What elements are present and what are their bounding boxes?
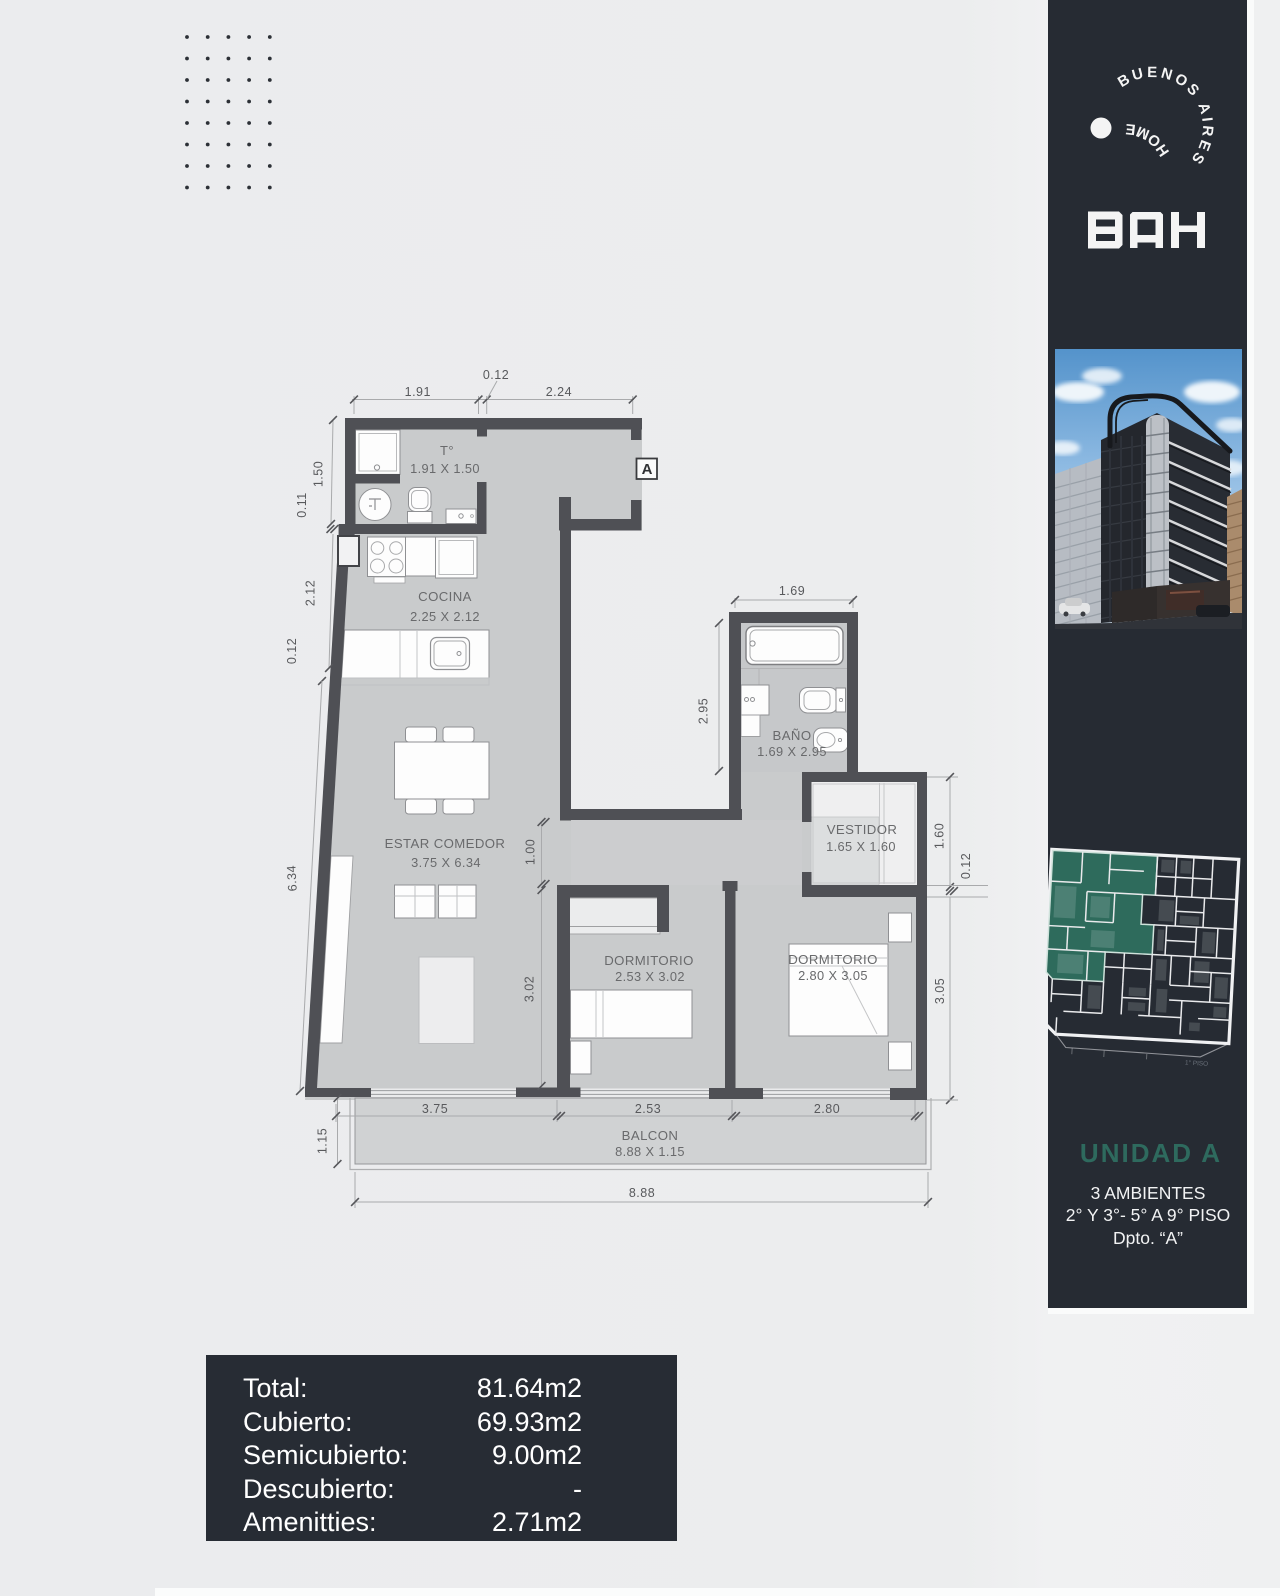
svg-text:HOME: HOME (1122, 120, 1173, 160)
svg-text:1° PISO: 1° PISO (1185, 1059, 1209, 1068)
